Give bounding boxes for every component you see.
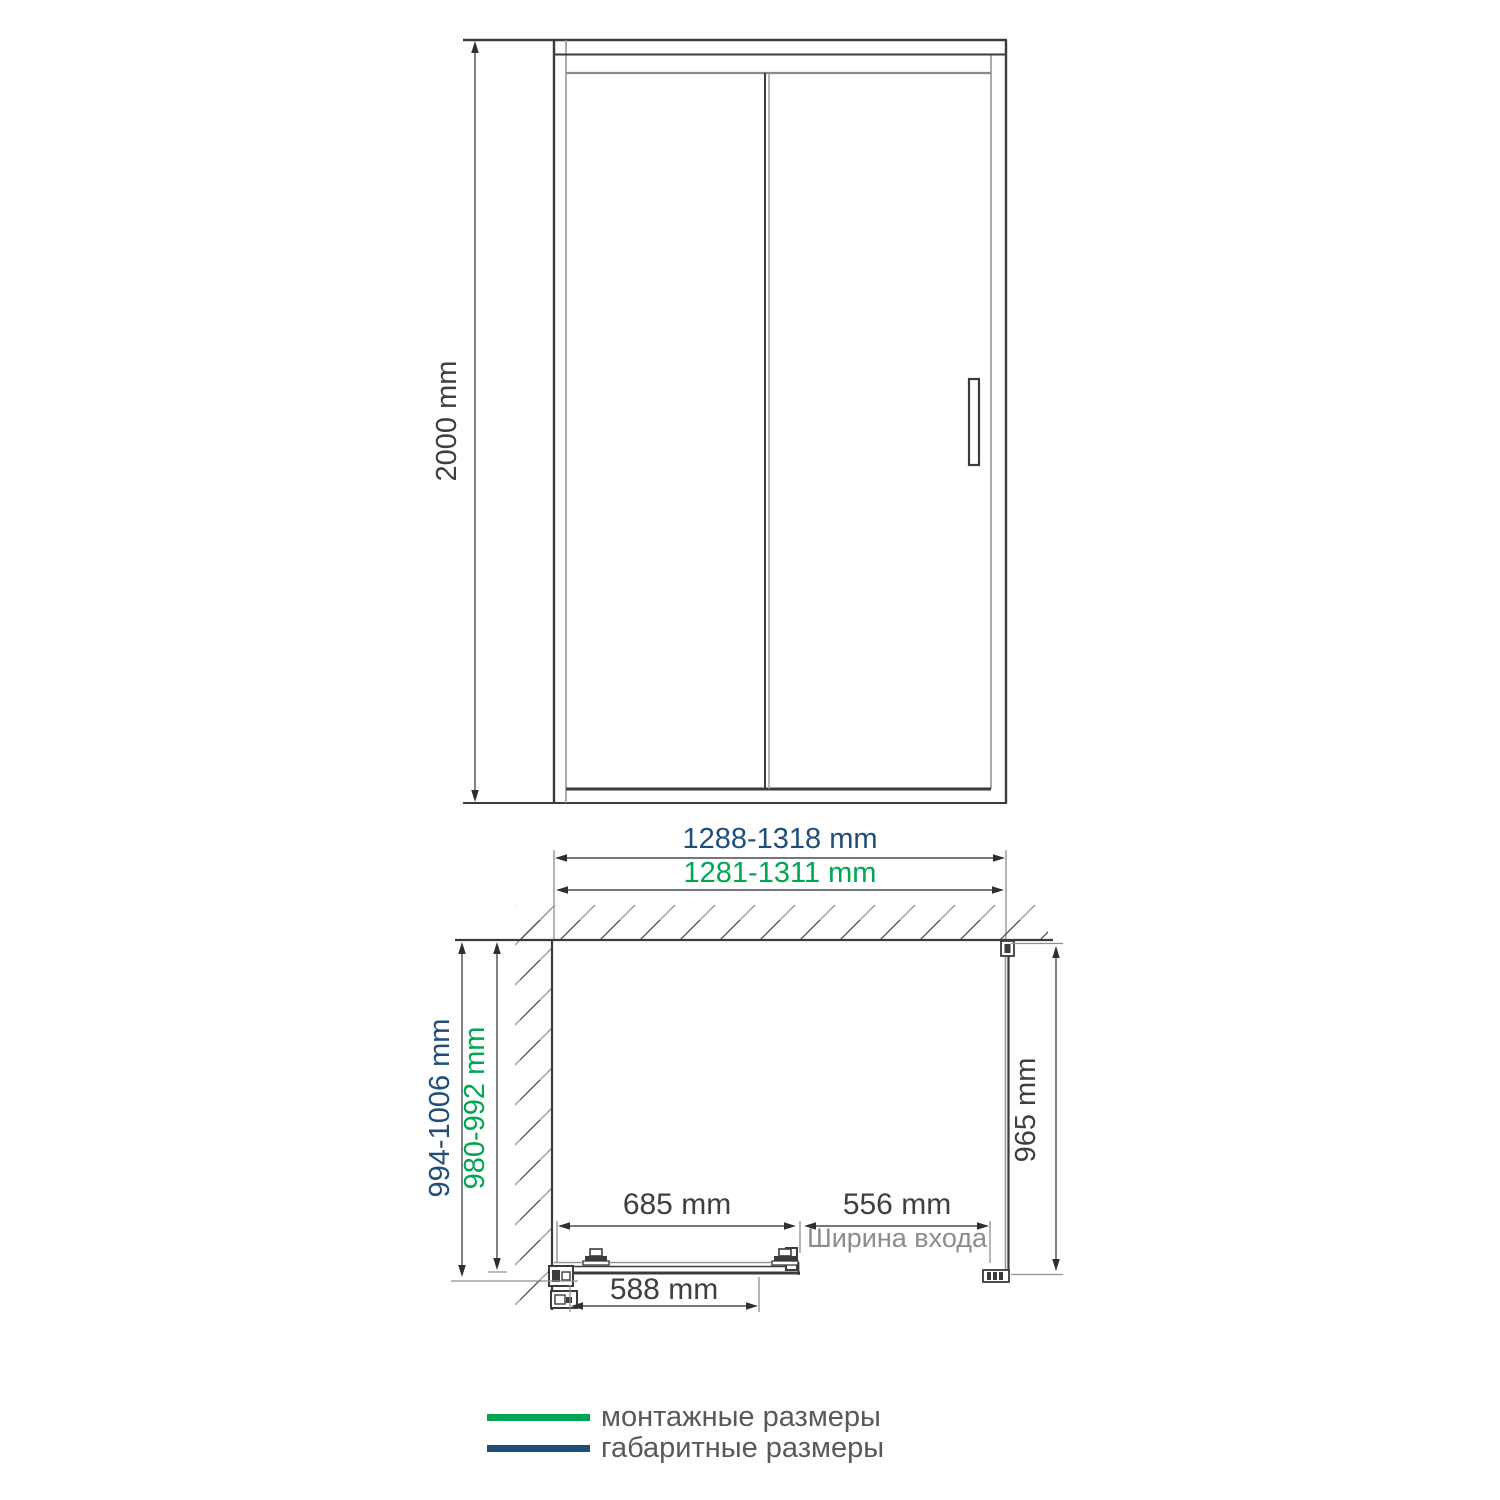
arrow-left-icon <box>556 886 568 894</box>
top-wall-hatch <box>516 905 1048 939</box>
wall-bracket-upper-detail <box>552 1270 560 1282</box>
overall-width-label: 1288-1318 mm <box>682 823 877 855</box>
shower-enclosure-drawing: 2000 mm 1288-1318 mm 1281-1311 mm <box>0 0 1500 1500</box>
height-dimension: 2000 mm <box>431 41 479 802</box>
wall-clamp-top-detail <box>1005 944 1011 953</box>
door-handle <box>969 379 979 465</box>
roller-top <box>779 1249 791 1256</box>
door-glass-label: 588 mm <box>610 1273 718 1306</box>
corner-bracket-bottom-right <box>983 1270 1009 1282</box>
fixed-segment-label: 685 mm <box>623 1188 731 1221</box>
arrow-down-icon <box>493 1258 501 1270</box>
door-glass-dimension: 588 mm <box>570 1273 759 1312</box>
arrow-left-icon <box>558 1222 570 1230</box>
bracket-rib <box>993 1272 997 1280</box>
legend-label-mounting: монтажные размеры <box>601 1401 881 1433</box>
entry-width-dimension: 556 mm Ширина входа <box>804 1188 990 1263</box>
side-panel-label: 965 mm <box>1010 1058 1042 1163</box>
mounting-depth-dimension: 980-992 mm <box>459 942 507 1272</box>
arrow-up-icon <box>471 41 479 53</box>
arrow-up-icon <box>1052 946 1060 958</box>
arrow-right-icon <box>746 1302 758 1310</box>
roller-left <box>583 1249 609 1265</box>
arrow-down-icon <box>471 790 479 802</box>
arrow-right-icon <box>993 854 1005 862</box>
mounting-width-dimension: 1281-1311 mm <box>556 857 1004 894</box>
legend-swatch-overall <box>487 1445 590 1452</box>
arrow-right-icon <box>992 886 1004 894</box>
roller-body <box>774 1256 796 1261</box>
bracket-rib <box>987 1272 991 1280</box>
wall-bracket-upper-detail-2 <box>562 1272 570 1280</box>
overall-depth-dimension: 994-1006 mm <box>424 942 578 1281</box>
entry-width-caption: Ширина входа <box>807 1223 988 1253</box>
mounting-width-label: 1281-1311 mm <box>684 857 877 889</box>
front-view: 2000 mm <box>431 40 1007 803</box>
bottom-track <box>554 1248 800 1275</box>
arrow-down-icon <box>458 1265 466 1277</box>
legend-swatch-mounting <box>487 1414 590 1421</box>
side-panel-dimension: 965 mm <box>1010 944 1063 1275</box>
drawing-canvas: 2000 mm 1288-1318 mm 1281-1311 mm <box>0 0 1500 1500</box>
left-wall-hardware <box>549 1266 577 1308</box>
entry-width-label: 556 mm <box>843 1188 951 1221</box>
plan-view: 1288-1318 mm 1281-1311 mm <box>424 823 1063 1312</box>
overall-depth-label: 994-1006 mm <box>424 1019 456 1198</box>
height-dimension-label: 2000 mm <box>431 361 463 482</box>
arrow-down-icon <box>1052 1259 1060 1271</box>
mounting-depth-label: 980-992 mm <box>459 1027 491 1190</box>
arrow-up-icon <box>458 942 466 954</box>
arrow-right-icon <box>784 1222 796 1230</box>
arrow-left-icon <box>555 854 567 862</box>
arrow-up-icon <box>493 942 501 954</box>
roller-base <box>583 1261 609 1265</box>
roller-body <box>585 1256 607 1261</box>
legend: монтажные размеры габаритные размеры <box>487 1401 884 1464</box>
wall-bracket-lower-detail <box>555 1295 565 1304</box>
bracket-rib <box>999 1272 1003 1280</box>
wall-bracket-lower-detail-2 <box>566 1297 572 1303</box>
left-wall-hatch <box>515 905 552 1305</box>
roller-base <box>772 1261 798 1265</box>
legend-label-overall: габаритные размеры <box>601 1432 884 1464</box>
roller-top <box>590 1249 602 1256</box>
